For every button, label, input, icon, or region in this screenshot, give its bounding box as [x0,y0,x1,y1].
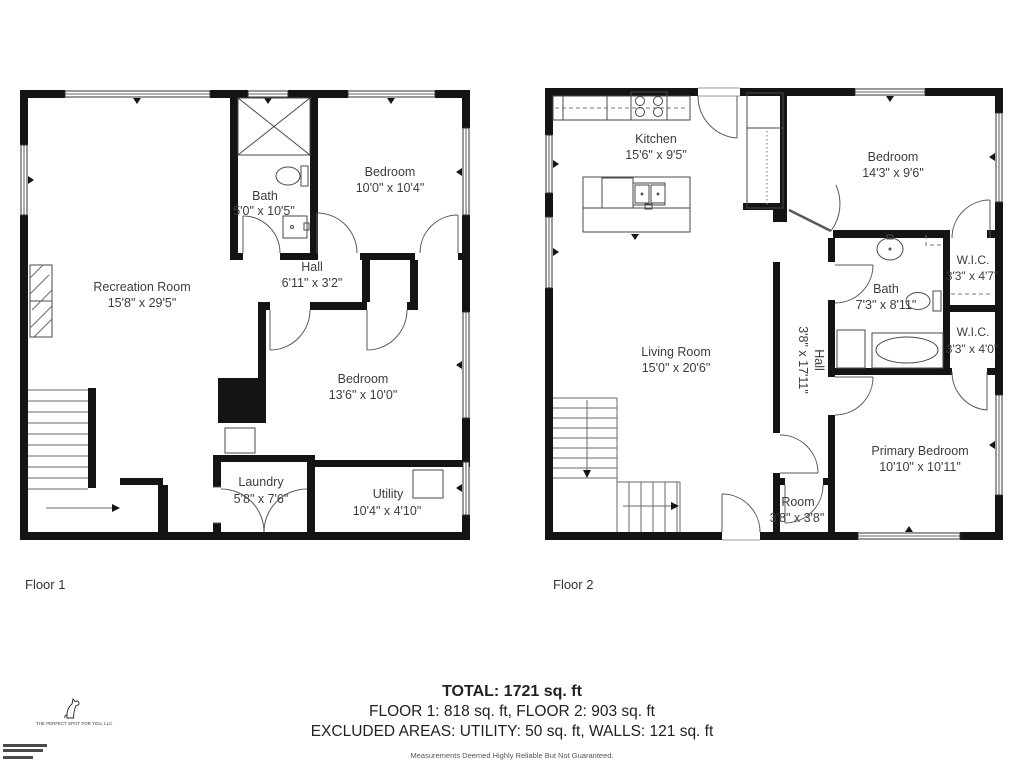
linen-closet-icon [837,330,865,368]
room-label-bath: Bath [873,282,899,296]
room-label-laundry: Laundry [238,475,284,489]
excluded-areas-text: EXCLUDED AREAS: UTILITY: 50 sq. ft, WALL… [0,723,1024,741]
room-label-hall-rotated: Hall 3'8" x 17'11" [796,326,826,394]
fine-print [3,744,47,761]
floor1-plan: Recreation Room 15'8" x 29'5" Bath 5'0" … [20,88,470,540]
kitchen-island-icon [583,177,690,232]
total-area-text: TOTAL: 1721 sq. ft [0,683,1024,701]
staircase-icon [553,398,680,532]
room-label-wic1: W.I.C. [957,253,990,267]
stair-direction-arrow [112,504,120,512]
room-dims-hall: 6'11" x 3'2" [282,276,343,290]
room-dims-wic2: 3'3" x 4'0" [946,342,998,356]
floor2-caption: Floor 2 [553,577,593,592]
room-dims-bath: 5'0" x 10'5" [233,204,295,218]
pantry-cabinet-icon [747,93,783,208]
room-dims-primary: 10'10" x 10'11" [879,460,961,474]
room-label-bedroom1: Bedroom [365,165,416,179]
staircase-icon [28,390,120,512]
room-dims-kitchen: 15'6" x 9'5" [625,148,687,162]
room-label-kitchen: Kitchen [635,132,677,146]
area-summary: TOTAL: 1721 sq. ft FLOOR 1: 818 sq. ft, … [0,683,1024,760]
room-label-bedroom2: Bedroom [338,372,389,386]
fine-print-line [3,756,33,759]
stair-direction-arrow [671,502,679,510]
fine-print-line [3,744,47,747]
company-name-text: THE PERFECT SPOT FOR YOU, LLC [36,721,106,726]
room-label-wic2: W.I.C. [957,325,990,339]
appliance-icon [225,428,255,453]
floorplan-page: { "colors": { "walls": "#141414", "label… [0,0,1024,768]
room-dims-bath: 7'3" x 8'11" [856,298,917,312]
stair-direction-arrow [583,470,591,478]
room-dims-laundry: 5'8" x 7'6" [234,492,289,506]
toilet-icon [276,167,300,185]
company-logo: THE PERFECT SPOT FOR YOU, LLC [36,696,106,726]
floor-areas-text: FLOOR 1: 818 sq. ft, FLOOR 2: 903 sq. ft [0,703,1024,721]
chimney-icon [30,265,52,337]
water-heater-icon [413,470,443,498]
fine-print-line [3,749,43,752]
room-label-bath: Bath [252,189,278,203]
room-label-room: Room [781,495,814,509]
room-dims-living: 15'0" x 20'6" [642,361,711,375]
room-dims-bedroom: 14'3" x 9'6" [862,166,924,180]
room-label-bedroom: Bedroom [868,150,919,164]
room-label-hall: Hall [301,260,323,274]
room-label-primary: Primary Bedroom [871,444,968,458]
floor2-plan: Kitchen 15'6" x 9'5" Bedroom 14'3" x 9'6… [545,85,1005,545]
kitchen-counter-icon [553,96,690,120]
room-dims-bedroom1: 10'0" x 10'4" [356,181,425,195]
room-dims-room: 3'8" x 3'8" [770,511,825,525]
floor2-labels: Kitchen 15'6" x 9'5" Bedroom 14'3" x 9'6… [625,132,998,525]
disclaimer-text: Measurements Deemed Highly Reliable But … [0,751,1024,760]
room-label-living: Living Room [641,345,710,359]
sink-icon [283,216,307,238]
room-dims-bedroom2: 13'6" x 10'0" [329,388,398,402]
floor1-walls [20,90,470,540]
room-dims-wic1: 3'3" x 4'7" [946,269,998,283]
room-label-hall: Hall [812,349,826,371]
room-label-recreation: Recreation Room [93,280,190,294]
room-dims-utility: 10'4" x 4'10" [353,504,422,518]
dog-icon [58,696,84,720]
room-dims-hall: 3'8" x 17'11" [796,326,810,394]
floor1-caption: Floor 1 [25,577,65,592]
room-label-utility: Utility [373,487,404,501]
room-dims-recreation: 15'8" x 29'5" [108,296,177,310]
